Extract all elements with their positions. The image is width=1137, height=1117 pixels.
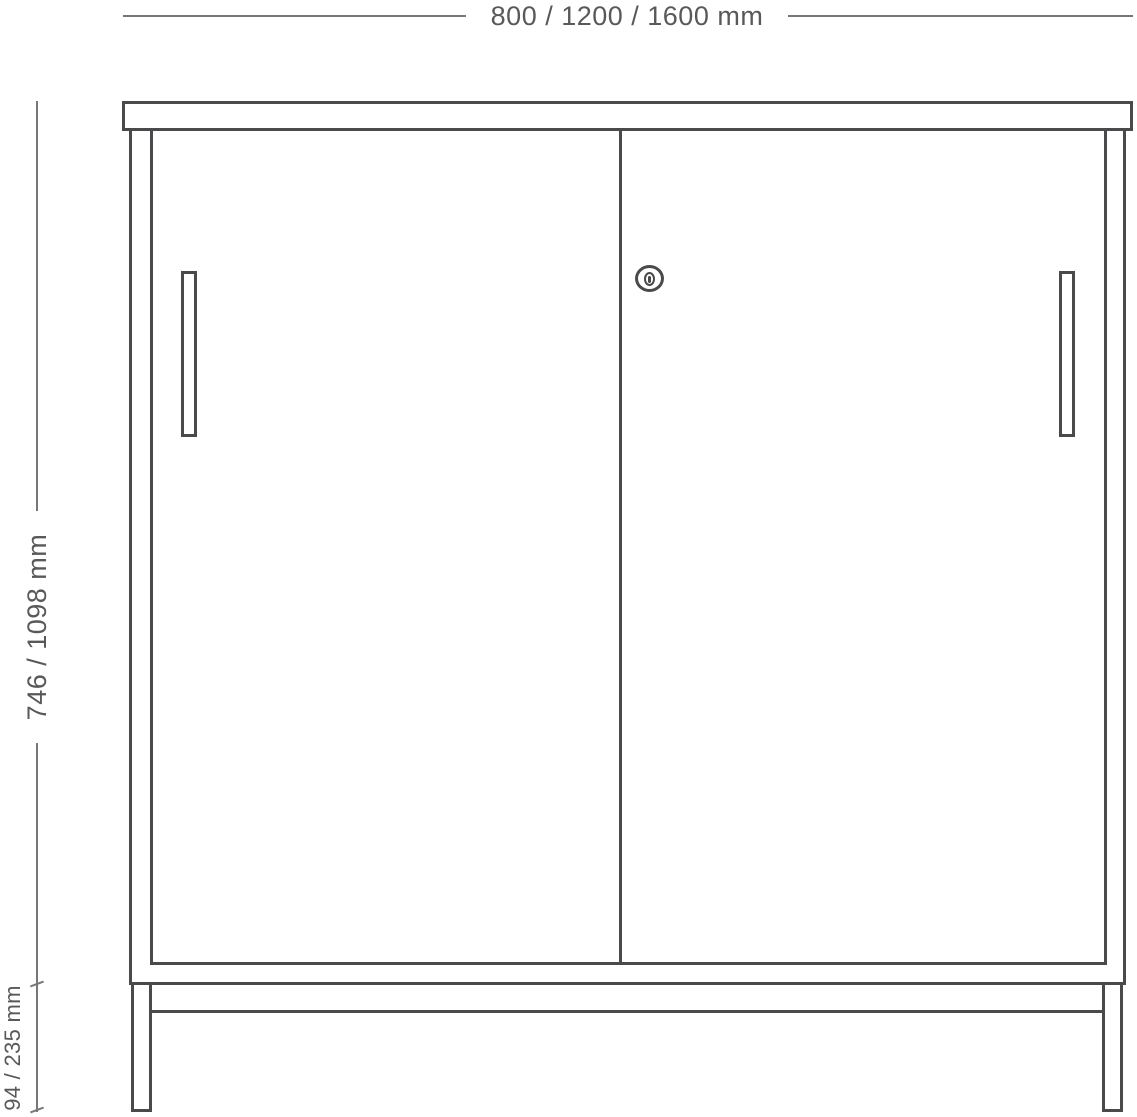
base-rail: [152, 985, 1104, 1013]
left-door-handle: [181, 271, 197, 437]
width-dimension-line-right: [788, 15, 1133, 17]
base-right-leg: [1102, 985, 1123, 1112]
technical-drawing-canvas: 800 / 1200 / 1600 mm 746 / 1098 mm 94 / …: [0, 0, 1137, 1117]
cabinet-top-panel: [122, 101, 1133, 131]
right-door-handle: [1059, 271, 1075, 437]
height-dimension-line-upper: [36, 101, 38, 511]
sliding-doors: [150, 131, 1107, 965]
base-left-leg: [131, 985, 152, 1112]
base-height-dimension-label: 94 / 235 mm: [1, 978, 25, 1117]
lock-keyhole-slot: [648, 276, 651, 283]
height-dimension-label: 746 / 1098 mm: [22, 497, 52, 757]
door-divider: [619, 131, 622, 962]
width-dimension-label: 800 / 1200 / 1600 mm: [466, 1, 788, 31]
dimension-tick-base-bottom: [30, 1107, 44, 1114]
height-dimension-line-lower: [36, 743, 38, 1112]
width-dimension-line-left: [123, 15, 466, 17]
